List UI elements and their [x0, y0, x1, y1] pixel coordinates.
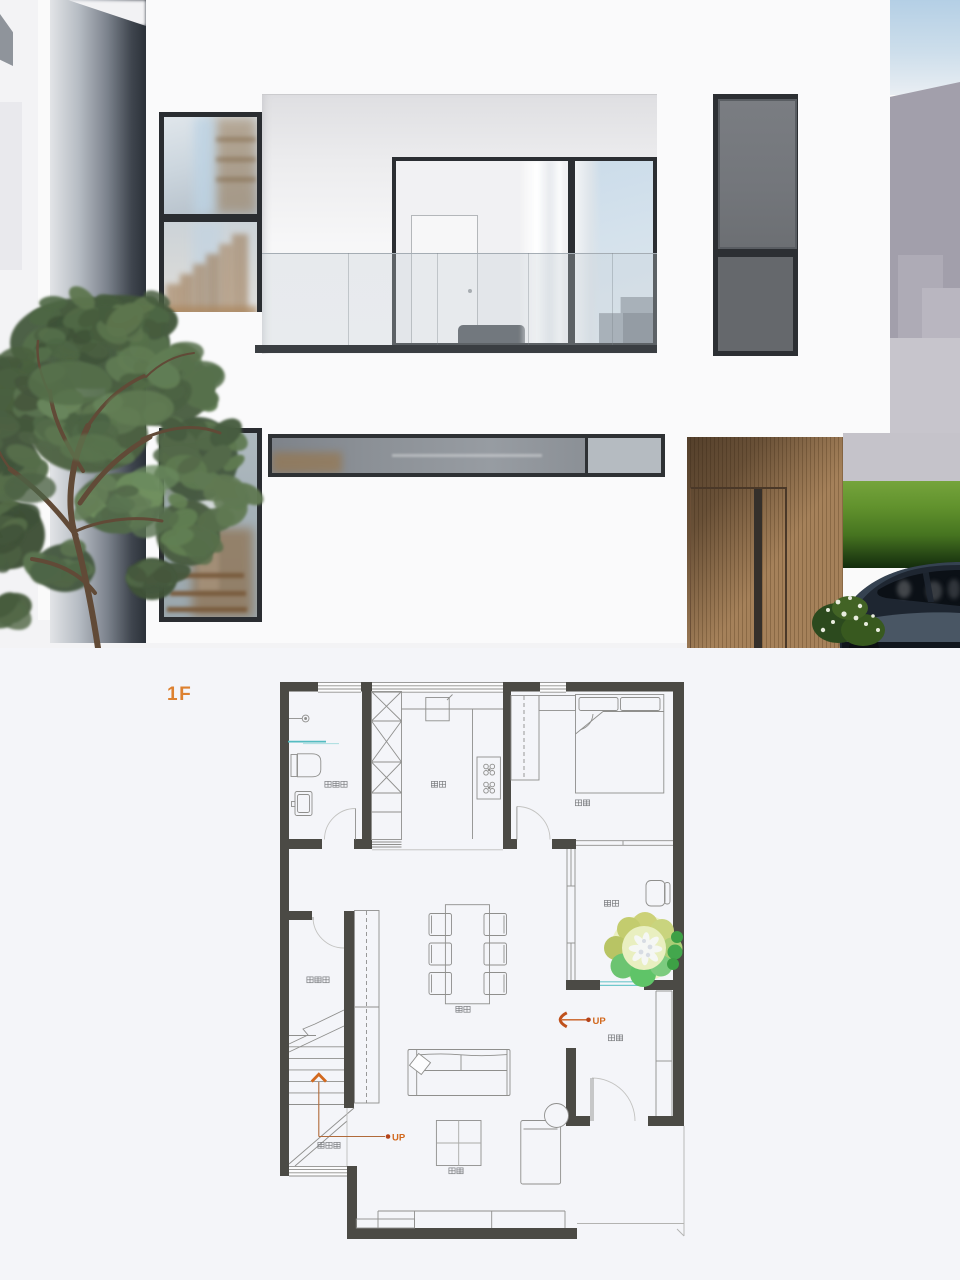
svg-text:UP: UP [593, 1016, 607, 1027]
svg-text:1F: 1F [167, 684, 192, 705]
svg-text:UP: UP [392, 1133, 406, 1144]
